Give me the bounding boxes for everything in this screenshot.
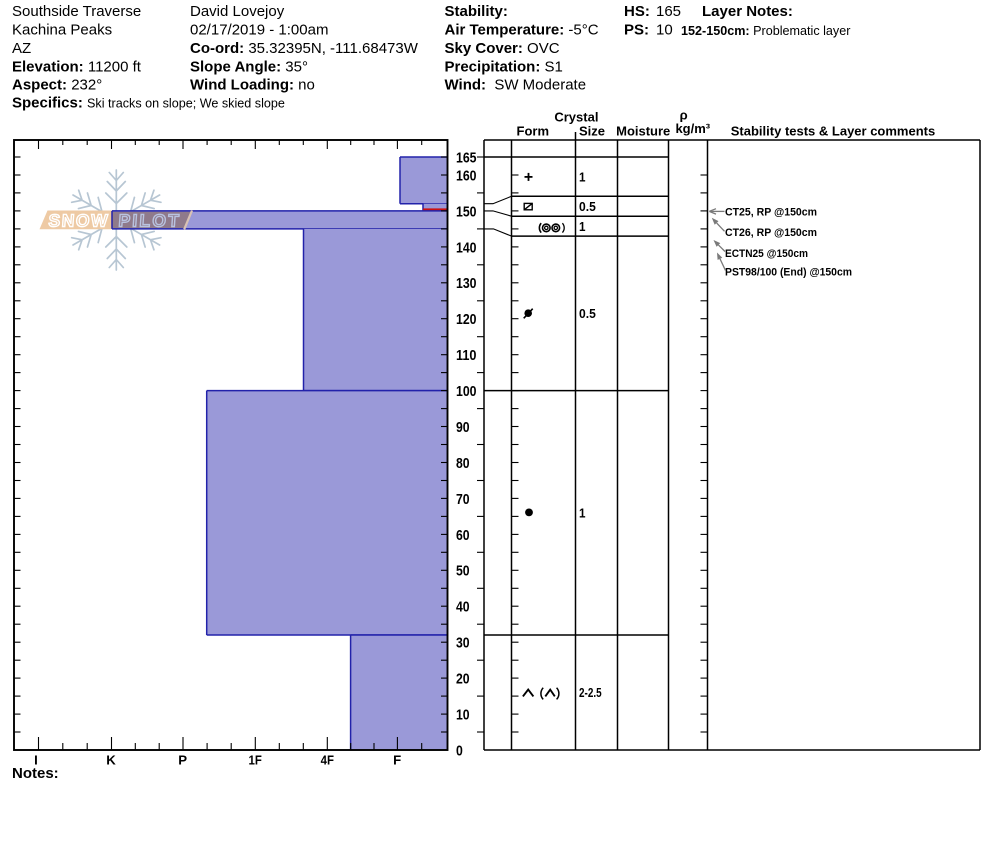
svg-text:1: 1 — [579, 170, 586, 184]
svg-text:80: 80 — [456, 456, 470, 472]
svg-text:Notes:: Notes: — [12, 765, 59, 782]
svg-text:90: 90 — [456, 420, 470, 436]
svg-text:130: 130 — [456, 276, 477, 292]
svg-text:30: 30 — [456, 636, 470, 652]
svg-text:Kachina Peaks: Kachina Peaks — [12, 22, 112, 39]
svg-text:20: 20 — [456, 672, 470, 688]
svg-text:100: 100 — [456, 384, 477, 400]
svg-text:Co-ord: 35.32395N, -111.68473W: Co-ord: 35.32395N, -111.68473W — [190, 40, 419, 57]
svg-text:1: 1 — [579, 220, 586, 234]
svg-text:ECTN25 @150cm: ECTN25 @150cm — [725, 248, 808, 260]
svg-text:165: 165 — [656, 3, 681, 20]
svg-text:kg/m³: kg/m³ — [675, 121, 710, 136]
svg-text:2-2.5: 2-2.5 — [579, 686, 602, 700]
svg-text:Specifics: Ski tracks on slope: Specifics: Ski tracks on slope; We skied… — [12, 95, 285, 112]
svg-text:0: 0 — [456, 743, 463, 759]
svg-text:40: 40 — [456, 600, 470, 616]
svg-text:PS:: PS: — [624, 22, 649, 39]
svg-text:0.5: 0.5 — [579, 200, 596, 214]
svg-text:F: F — [393, 752, 401, 767]
svg-text:150: 150 — [456, 204, 477, 220]
svg-text:10: 10 — [656, 22, 673, 39]
svg-text:Stability tests & Layer commen: Stability tests & Layer comments — [731, 123, 935, 138]
svg-text:Moisture: Moisture — [616, 123, 670, 138]
svg-text:PILOT: PILOT — [118, 211, 182, 231]
svg-text:165: 165 — [456, 150, 477, 166]
svg-text:Stability:: Stability: — [445, 3, 508, 20]
svg-text:Slope Angle: 35°: Slope Angle: 35° — [190, 59, 308, 76]
svg-text:Elevation: 11200 ft: Elevation: 11200 ft — [12, 59, 142, 76]
svg-text:110: 110 — [456, 348, 477, 364]
svg-text:P: P — [178, 752, 187, 767]
svg-text:Air Temperature: -5°C: Air Temperature: -5°C — [445, 22, 599, 39]
svg-text:120: 120 — [456, 312, 477, 328]
svg-text:160: 160 — [456, 168, 477, 184]
svg-text:Wind Loading: no: Wind Loading: no — [190, 77, 315, 94]
svg-text:Aspect: 232°: Aspect: 232° — [12, 77, 102, 94]
svg-text:Layer Notes:: Layer Notes: — [702, 3, 793, 20]
svg-text:140: 140 — [456, 240, 477, 256]
svg-text:AZ: AZ — [12, 40, 31, 57]
svg-text:Sky Cover: OVC: Sky Cover: OVC — [445, 40, 560, 57]
svg-text:70: 70 — [456, 492, 470, 508]
svg-text:HS:: HS: — [624, 3, 650, 20]
svg-text:0.5: 0.5 — [579, 307, 596, 321]
svg-text:Wind: SW Moderate: Wind: SW Moderate — [445, 77, 587, 94]
svg-text:Crystal: Crystal — [554, 109, 598, 124]
svg-text:Precipitation: S1: Precipitation: S1 — [445, 59, 563, 76]
svg-text:PST98/100 (End) @150cm: PST98/100 (End) @150cm — [725, 266, 852, 278]
svg-text:Size: Size — [579, 123, 605, 138]
svg-text:50: 50 — [456, 564, 470, 580]
svg-text:K: K — [106, 752, 116, 767]
svg-text:02/17/2019 - 1:00am: 02/17/2019 - 1:00am — [190, 22, 328, 39]
svg-text:152-150cm: Problematic layer: 152-150cm: Problematic layer — [681, 24, 850, 38]
svg-text:10: 10 — [456, 708, 470, 724]
svg-text:60: 60 — [456, 528, 470, 544]
svg-text:SNOW: SNOW — [48, 211, 110, 231]
svg-text:David Lovejoy: David Lovejoy — [190, 3, 285, 20]
svg-text:4F: 4F — [321, 752, 334, 767]
svg-text:Form: Form — [517, 123, 550, 138]
svg-text:1F: 1F — [249, 752, 262, 767]
svg-text:1: 1 — [579, 507, 586, 521]
svg-text:CT25, RP @150cm: CT25, RP @150cm — [725, 207, 817, 219]
svg-text:CT26, RP @150cm: CT26, RP @150cm — [725, 227, 817, 239]
svg-text:Southside Traverse: Southside Traverse — [12, 3, 141, 20]
